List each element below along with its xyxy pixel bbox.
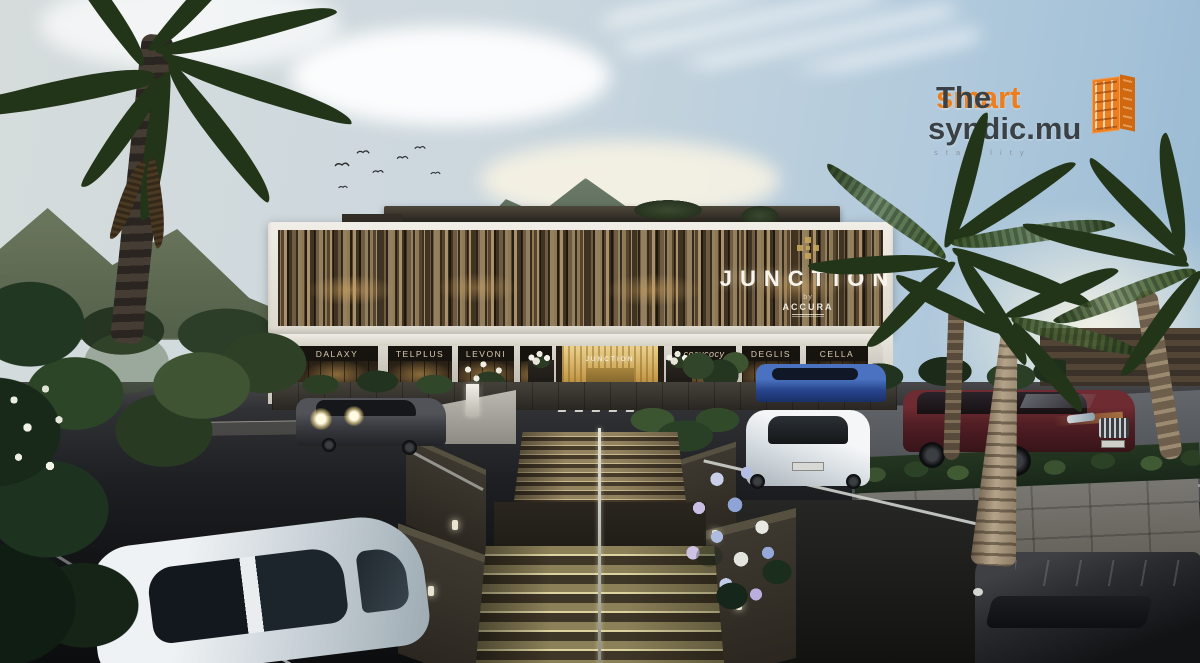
headlight-glow <box>344 406 364 426</box>
bird-icon <box>372 168 388 177</box>
headlight-glow <box>310 408 332 430</box>
panoramic-sunroof <box>146 546 350 645</box>
wall-light <box>452 520 458 530</box>
dark-suv-foreground <box>975 552 1200 663</box>
facade-signage: JUNCTION by ACCURA <box>708 230 908 326</box>
developer-name: ACCURA <box>708 302 908 312</box>
bird-icon <box>356 148 372 157</box>
hatchback-rear-window <box>768 416 848 444</box>
shop-sign: DEGLIS <box>742 346 800 361</box>
wheel <box>322 438 336 452</box>
front-grille <box>1099 418 1129 438</box>
byline-text: by <box>708 294 908 301</box>
bird-icon <box>414 144 430 153</box>
wall-light <box>428 586 434 596</box>
logo-line2: syndic.mu <box>928 111 1081 147</box>
hydrangea-bush <box>672 460 822 620</box>
building-icon-front-face <box>1092 76 1120 133</box>
building-icon-side-face <box>1120 74 1135 131</box>
smart-syndic-building-icon <box>1086 70 1142 142</box>
windshield-reflection <box>1020 394 1096 408</box>
fascia-band <box>268 334 893 346</box>
entrance-sign: JUNCTION <box>562 356 658 363</box>
mirror-highlight <box>973 588 983 596</box>
cloud-streaks <box>600 0 980 70</box>
architectural-rendering-scene: The smart syndic.mu s t a b i l i t y JU… <box>0 0 1200 663</box>
bird-icon <box>338 184 354 193</box>
wheel <box>919 442 945 468</box>
bird-icon <box>396 154 412 163</box>
license-plate <box>1101 440 1125 448</box>
car-window <box>772 368 858 380</box>
totem-sign <box>466 384 479 416</box>
wheel <box>846 474 861 489</box>
windshield <box>355 546 410 613</box>
suv-windows <box>985 596 1153 628</box>
developer-underline <box>792 314 824 317</box>
bird-icon <box>430 170 446 179</box>
rooftop-plants <box>620 196 716 224</box>
wheel <box>402 440 417 455</box>
stair-handrail <box>598 428 601 663</box>
maroon-audi-suv <box>903 370 1135 470</box>
roof-highlight <box>1015 560 1185 586</box>
junction-emblem-icon <box>796 236 820 260</box>
shop-sign: TELPLUS <box>388 346 452 361</box>
bird-icon <box>334 160 350 169</box>
